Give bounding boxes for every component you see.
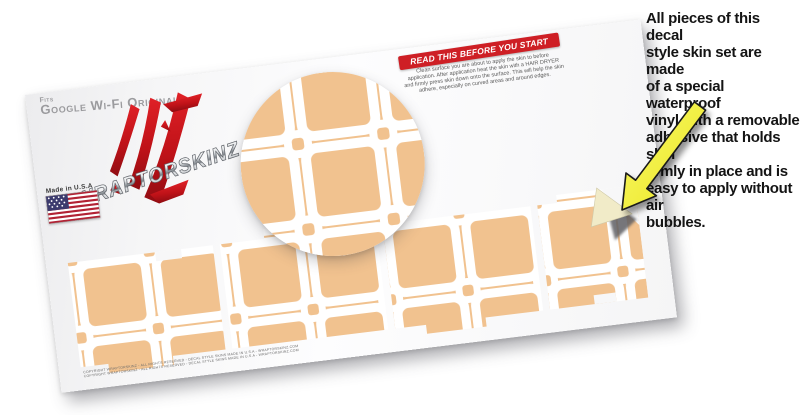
strip-piece bbox=[382, 206, 544, 337]
decal-sheet: Fits Google Wi-Fi Original bbox=[25, 19, 677, 392]
peel-corner-arrow bbox=[608, 100, 710, 222]
us-flag-icon bbox=[45, 190, 100, 224]
product-mockup: Fits Google Wi-Fi Original bbox=[0, 0, 800, 415]
callout-line: All pieces of this decal bbox=[646, 10, 800, 44]
callout-line: style skin set are made bbox=[646, 44, 800, 78]
